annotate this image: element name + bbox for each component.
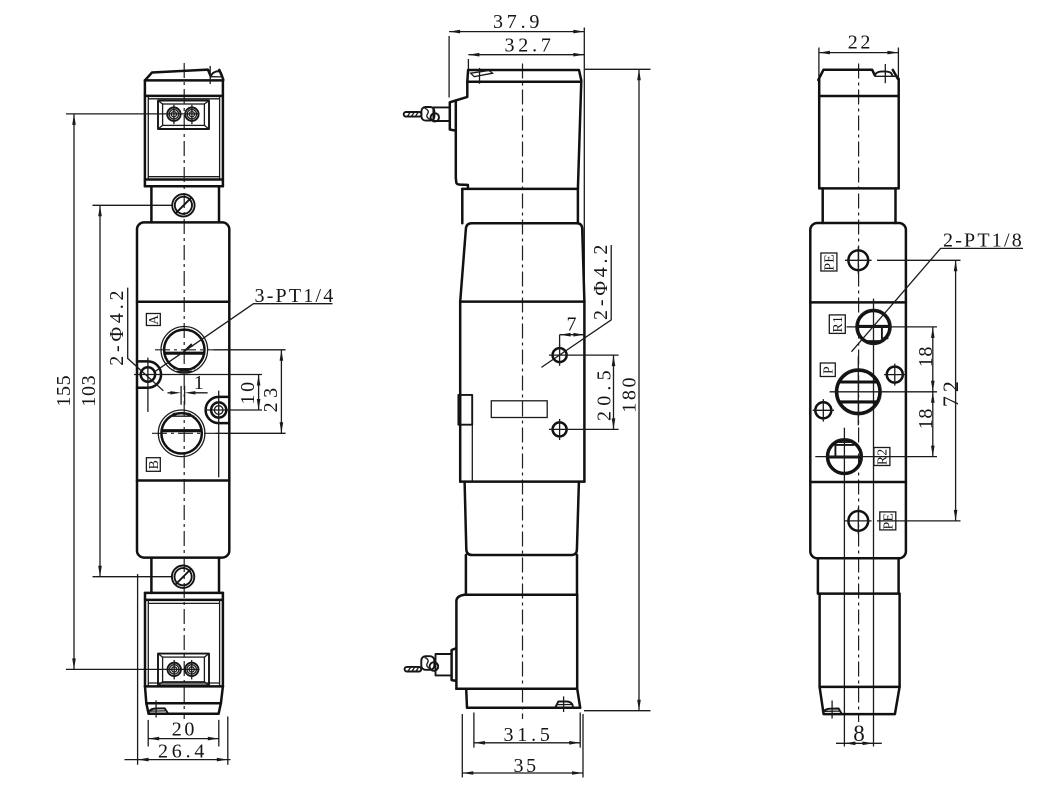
- svg-text:72: 72: [938, 377, 963, 407]
- svg-text:31.5: 31.5: [504, 724, 554, 746]
- svg-text:2-Φ4.2: 2-Φ4.2: [590, 241, 612, 320]
- svg-text:26.4: 26.4: [158, 741, 208, 763]
- svg-text:32.7: 32.7: [505, 35, 555, 57]
- svg-text:1: 1: [194, 372, 205, 394]
- svg-text:R2: R2: [875, 448, 890, 465]
- svg-text:18: 18: [915, 346, 937, 367]
- svg-text:2-Φ4.2: 2-Φ4.2: [106, 287, 128, 366]
- svg-text:PE: PE: [822, 254, 837, 271]
- svg-text:37.9: 37.9: [493, 11, 543, 33]
- svg-text:7: 7: [567, 314, 578, 336]
- svg-text:A: A: [146, 315, 161, 325]
- svg-text:180: 180: [619, 375, 641, 413]
- svg-text:155: 155: [53, 375, 75, 407]
- svg-text:23: 23: [260, 383, 282, 412]
- svg-text:18: 18: [915, 408, 937, 429]
- svg-text:35: 35: [514, 755, 539, 777]
- svg-text:R1: R1: [830, 316, 845, 333]
- svg-text:20.5: 20.5: [594, 365, 616, 421]
- svg-text:P: P: [821, 366, 836, 374]
- svg-text:20: 20: [172, 718, 197, 740]
- svg-text:10: 10: [237, 379, 259, 404]
- svg-text:B: B: [146, 460, 161, 469]
- svg-text:103: 103: [78, 375, 100, 407]
- svg-text:8: 8: [853, 721, 865, 746]
- svg-text:22: 22: [848, 31, 873, 53]
